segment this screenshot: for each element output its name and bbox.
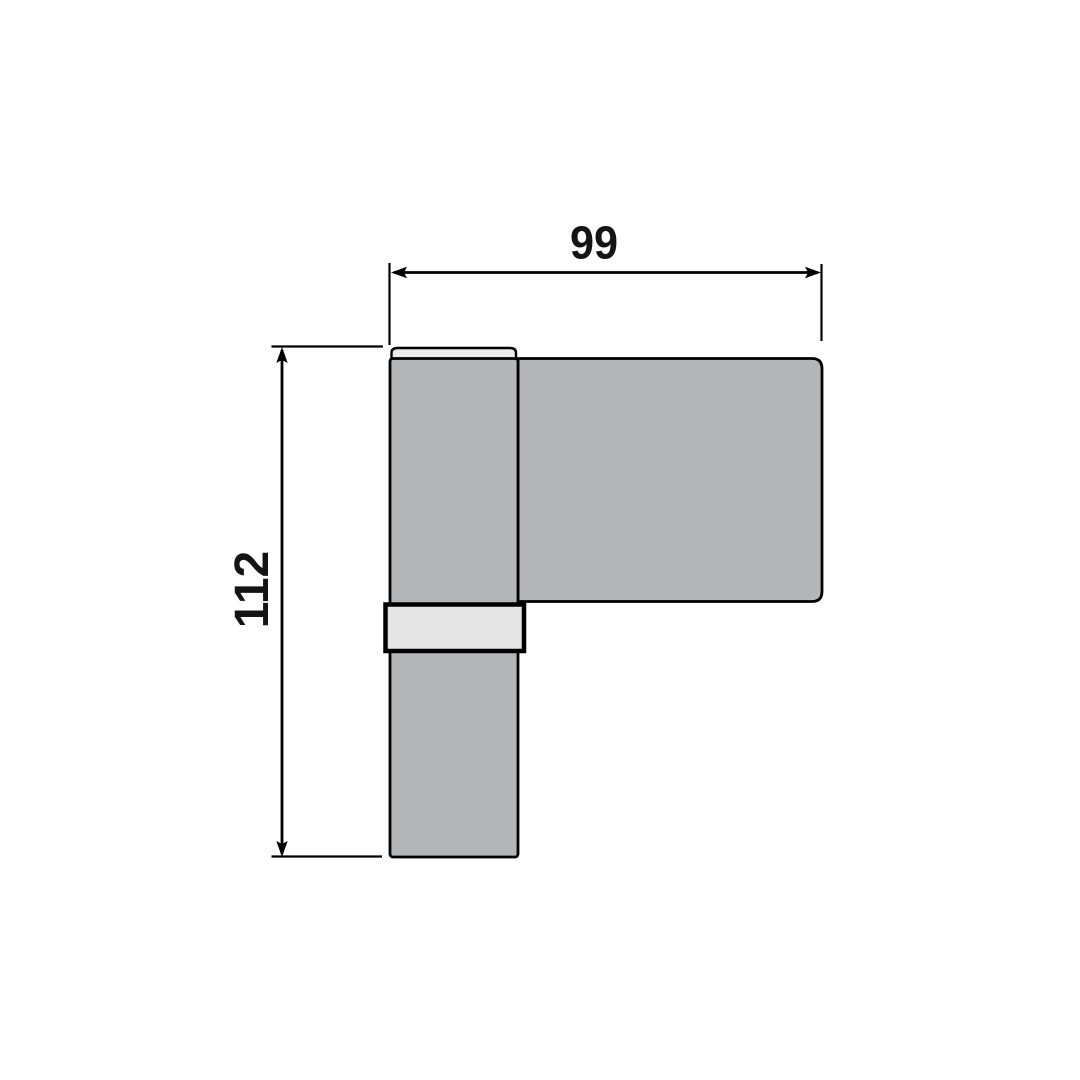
- svg-text:112: 112: [226, 551, 279, 628]
- svg-text:99: 99: [570, 218, 618, 268]
